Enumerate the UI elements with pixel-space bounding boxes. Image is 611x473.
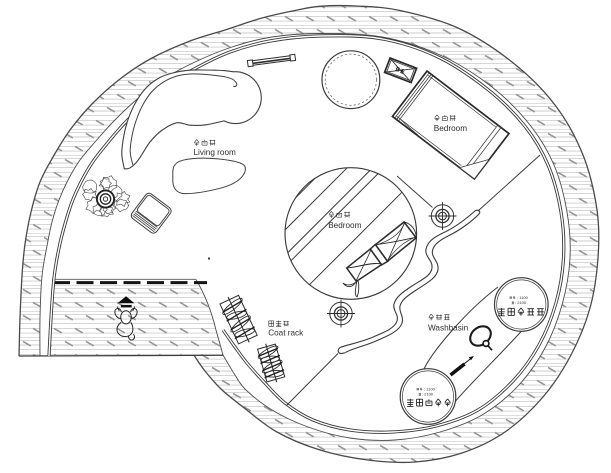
svg-text:Washbasin: Washbasin: [428, 323, 469, 332]
svg-text:: 2100: : 2100: [515, 300, 527, 305]
svg-text:Living room: Living room: [194, 148, 237, 157]
svg-text:Bedroom: Bedroom: [328, 221, 361, 230]
svg-text:Coat rack: Coat rack: [268, 329, 304, 338]
svg-text:Bedroom: Bedroom: [434, 124, 467, 133]
svg-text:: 2100: : 2100: [422, 392, 434, 397]
